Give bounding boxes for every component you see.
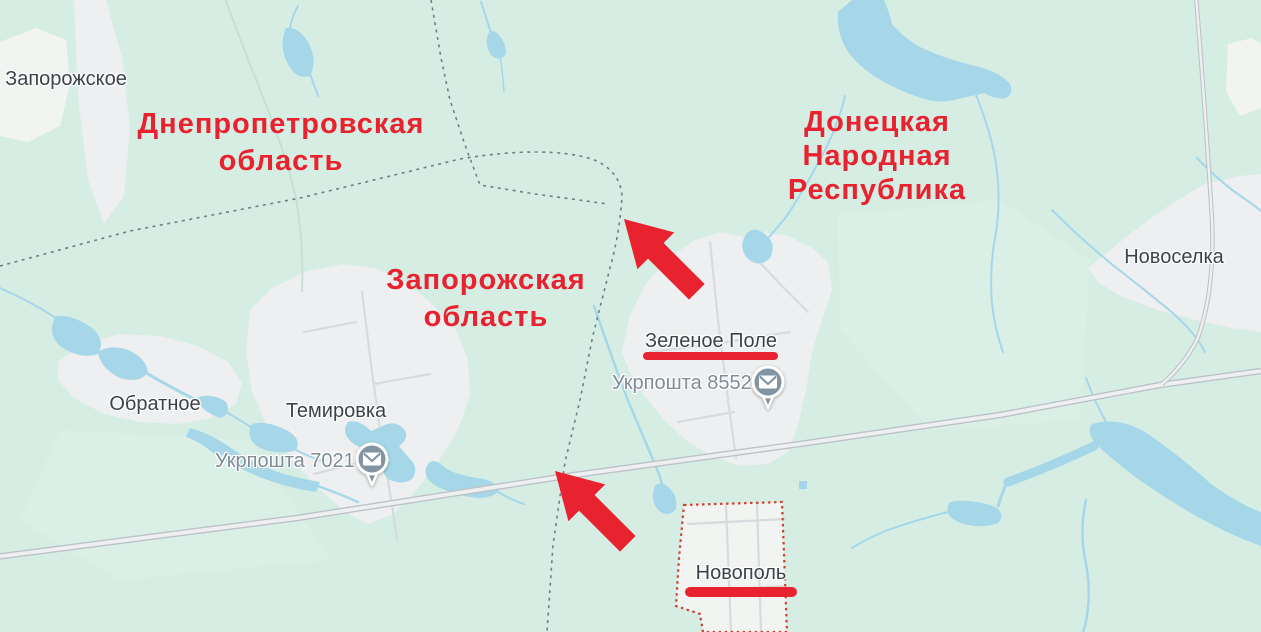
map-stage[interactable]: Днепропетровская область Донецкая Народн… — [0, 0, 1261, 632]
region-label-line: Донецкая — [788, 105, 966, 139]
region-label-line: Народная — [788, 139, 966, 173]
red-underline-novopol — [685, 587, 797, 597]
region-label-line: Запорожская — [386, 262, 585, 299]
red-underline-zelenoe-pole — [643, 352, 778, 360]
place-label-temirovka[interactable]: Темировка — [286, 399, 386, 423]
post-office-label-70210[interactable]: Укрпошта 70210 — [215, 449, 366, 473]
post-office-label-85525[interactable]: Укрпошта 85525 — [612, 371, 763, 395]
place-label-zaporozhskoe[interactable]: Запорожское — [5, 67, 127, 91]
place-label-zelenoe-pole[interactable]: Зеленое Поле — [645, 329, 777, 353]
region-label-zaporizhzhia: Запорожская область — [386, 262, 585, 336]
place-label-obratnoe[interactable]: Обратное — [109, 392, 200, 416]
region-label-line: область — [386, 299, 585, 336]
map-canvas[interactable] — [0, 0, 1261, 632]
post-office-pin-icon[interactable] — [748, 364, 788, 419]
place-label-novoselka[interactable]: Новоселка — [1124, 245, 1224, 269]
post-office-pin-icon[interactable] — [352, 441, 392, 496]
region-label-dnipropetrovsk: Днепропетровская область — [138, 106, 425, 180]
region-label-line: Днепропетровская — [138, 106, 425, 143]
place-label-novopol[interactable]: Новополь — [696, 561, 787, 585]
region-label-line: область — [138, 143, 425, 180]
region-label-donetsk: Донецкая Народная Республика — [788, 105, 966, 207]
region-label-line: Республика — [788, 173, 966, 207]
